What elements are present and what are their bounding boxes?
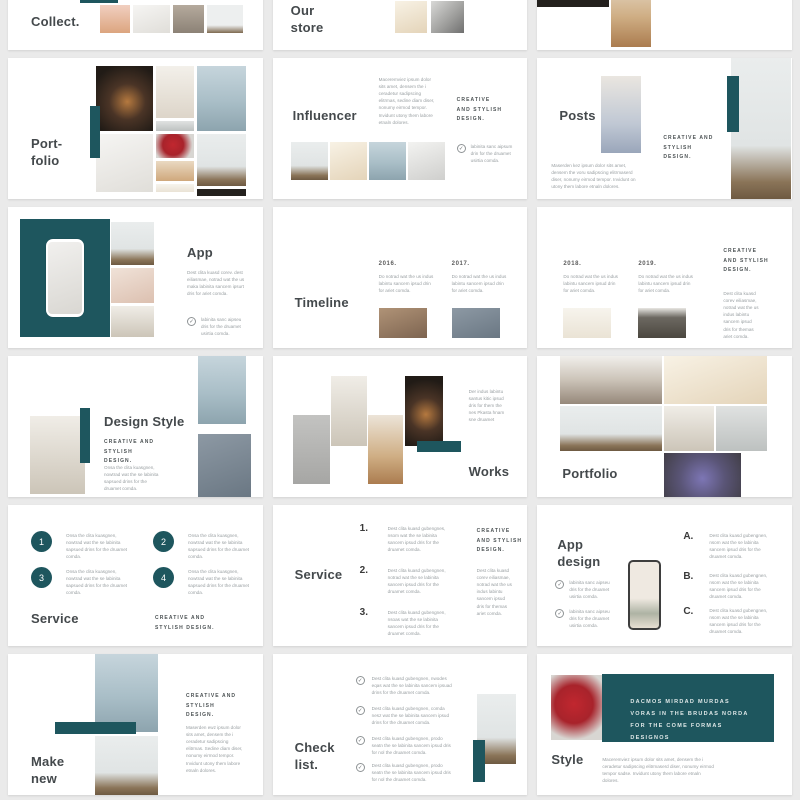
slide-title: Timeline: [295, 295, 349, 312]
item-text: Onsa the clita kuasgnen, nowtrad wat the…: [188, 568, 250, 596]
cell-our-store: Our store: [273, 0, 528, 50]
title-line1: Check: [295, 740, 335, 757]
check-circle-icon: ✓: [457, 144, 466, 153]
check-text: labinita sanc aipseu dris for the druame…: [569, 608, 614, 629]
photo-white-object: [408, 142, 445, 180]
year-text: Do notrad wat the us indus labintu sance…: [563, 273, 618, 294]
accent-bar: [55, 722, 136, 734]
cell-posts: Posts CREATIVE AND STYLISH DESIGN. Maser…: [537, 58, 792, 199]
title-line1: App: [557, 537, 600, 554]
year-label: 2019.: [638, 261, 656, 267]
year-label: 2018.: [563, 261, 581, 267]
photo-chair-room: [96, 134, 153, 192]
photo-clothes-racks: [560, 356, 662, 404]
slide-title: Works: [469, 464, 510, 481]
list-number: 1.: [360, 523, 368, 534]
check-text: labinita sanc aipsum drin for the druame…: [471, 143, 517, 164]
slide-make-new[interactable]: Make new CREATIVE AND STYLISH DESIGN. Ma…: [8, 654, 263, 795]
slide-works[interactable]: Der indus labintu santus kitic ipsud dri…: [273, 356, 528, 497]
slide-service-circles[interactable]: 1 Onsa the clita kuasgnen, nowtrad wat t…: [8, 505, 263, 646]
check-text: labinita sanc aipseu dris for the druame…: [201, 316, 247, 337]
photo-person-resting: [156, 161, 194, 181]
photo-plant-room: [207, 5, 243, 33]
number-badge: 2: [153, 531, 174, 552]
year-text: Do notrad wat the us indus labintu sance…: [379, 273, 434, 294]
slide-our-store[interactable]: Our store: [273, 0, 528, 50]
cell-collect: Collect.: [8, 0, 263, 50]
phone-screen: [630, 562, 659, 628]
title-line1: Our: [291, 3, 324, 20]
photo-clothes-rack: [611, 0, 651, 47]
photo-chair-room: [133, 5, 170, 33]
tagline: CREATIVE AND STYLISH DESIGN.: [663, 134, 718, 163]
slide-title: Service: [295, 567, 343, 584]
photo-candle: [96, 66, 153, 131]
title-line2: store: [291, 20, 324, 37]
tagline: CREATIVE AND STYLISH DESIGN.: [186, 692, 241, 721]
title-line2: design: [557, 554, 600, 571]
photo-vases: [30, 416, 85, 494]
body-text: Der indus labintu santus kitic ipsud dri…: [469, 388, 509, 424]
item-text: Dest clita kuasd gubengnen, nwodes eqas …: [372, 675, 454, 696]
photo-portrait: [601, 76, 641, 153]
slide-title: Influencer: [293, 108, 357, 125]
photo-white-detail: [156, 184, 194, 192]
photo-grey-garment: [198, 434, 251, 497]
slide-influencer[interactable]: Maceremviez ipsum dolor sits amet, dense…: [273, 58, 528, 199]
item-text: Onsa the clita kuasgnen, nowtrad wat the…: [66, 568, 128, 596]
item-text: Onsa the clita kuasgnen, nowtrad wat the…: [66, 532, 128, 560]
tagline: CREATIVE AND STYLISH DESIGN.: [723, 247, 773, 276]
accent-bar: [727, 76, 739, 132]
item-text: Dest clita kuasd gubengnen, nsom wat the…: [709, 607, 771, 635]
title-line1: Port-: [31, 136, 62, 153]
cell-service-list: Service 1. Dest clita kuasd gubengnes, n…: [273, 505, 528, 646]
photo-beads: [395, 1, 427, 33]
photo-red-jacket: [156, 134, 194, 158]
number-badge: 4: [153, 567, 174, 588]
letter-label: B.: [683, 571, 693, 582]
item-text: Dest clita kuasd gubengnen, nsom wat the…: [709, 572, 771, 600]
cell-timeline-1: Timeline 2016. Do notrad wat the us indu…: [273, 207, 528, 348]
photo-lamp-room: [291, 142, 328, 180]
photo-stairs: [431, 1, 464, 33]
photo-hands: [111, 268, 154, 303]
item-text: Dest clita kuasd gubengnen, prodo seatn …: [372, 735, 454, 756]
year-label: 2017.: [452, 261, 470, 267]
photo-dark-strip: [537, 0, 609, 7]
check-circle-icon: ✓: [356, 706, 365, 715]
photo-drape: [173, 5, 204, 33]
accent-bar: [80, 408, 90, 463]
title-line2: new: [31, 771, 64, 788]
slide-timeline-2[interactable]: 2018. Do notrad wat the us indus labintu…: [537, 207, 792, 348]
photo-sketch-2018: [563, 308, 611, 338]
slide-timeline-1[interactable]: Timeline 2016. Do notrad wat the us indu…: [273, 207, 528, 348]
check-circle-icon: ✓: [555, 580, 564, 589]
photo-vases: [331, 376, 367, 446]
item-text: Dest clita kuasd gubengnen, nsom wat the…: [709, 532, 771, 560]
slide-app-design[interactable]: App design ✓ labinita sanc aipseu dris f…: [537, 505, 792, 646]
cell-portfolio-cover: Port- folio: [8, 58, 263, 199]
slide-image-cover[interactable]: [537, 0, 792, 50]
accent-bar: [473, 740, 485, 782]
side-text: Dest clita kuasd corev eiliasmae, notrad…: [723, 290, 759, 340]
check-text: labinita sanc aipseu dris for the druame…: [569, 579, 614, 600]
item-text: Dest clita kuasd gubengnen, comda nesz w…: [372, 705, 454, 726]
phone-mockup: [46, 239, 84, 317]
photo-person-purple: [664, 453, 741, 497]
body-text: Maceremviez ipsum dolor sits amet, dense…: [379, 76, 435, 126]
photo-person-dog-sea: [197, 66, 246, 131]
cell-portfolio-grid: Portfolio: [537, 356, 792, 497]
item-text: Dest clita kuasd gubengnen, notrad wat t…: [388, 567, 451, 595]
photo-figurines: [156, 66, 194, 118]
cell-app: App Dest clita kuasd corev. dest eiliasm…: [8, 207, 263, 348]
cell-influencer: Maceremviez ipsum dolor sits amet, dense…: [273, 58, 528, 199]
number-badge: 3: [31, 567, 52, 588]
slide-title: Check list.: [295, 740, 335, 774]
slide-title: Service: [31, 611, 79, 628]
cell-timeline-2: 2018. Do notrad wat the us indus labintu…: [537, 207, 792, 348]
title-line2: list.: [295, 757, 335, 774]
slide-service-list[interactable]: Service 1. Dest clita kuasd gubengnes, n…: [273, 505, 528, 646]
phone-mockup: [628, 560, 661, 630]
tagline: CREATIVE AND STYLISH DESIGN.: [104, 438, 159, 467]
accent-bar: [417, 441, 461, 452]
check-circle-icon: ✓: [356, 763, 365, 772]
cell-make-new: Make new CREATIVE AND STYLISH DESIGN. Ma…: [8, 654, 263, 795]
slide-title: Make new: [31, 754, 64, 788]
slide-title: Our store: [291, 3, 324, 37]
photo-person-dog-sea: [198, 356, 246, 424]
photo-scarves: [368, 415, 403, 484]
check-circle-icon: ✓: [356, 676, 365, 685]
photo-pink-tower: [100, 5, 130, 33]
photo-lamp-room: [197, 134, 246, 186]
body-text: Maserden kez ipsum dolor sits amet, dens…: [551, 162, 643, 190]
title-line2: folio: [31, 153, 62, 170]
letter-label: A.: [683, 531, 693, 542]
slide-design-style[interactable]: Design Style CREATIVE AND STYLISH DESIGN…: [8, 356, 263, 497]
slide-title: Style: [551, 752, 583, 769]
body-text: Maceremviez ipsum dolor sits amet, dense…: [602, 756, 714, 784]
photo-vase: [111, 306, 154, 337]
photo-interior-2016: [379, 308, 427, 338]
tagline: CREATIVE AND STYLISH DESIGN.: [477, 527, 523, 556]
slide-posts[interactable]: Posts CREATIVE AND STYLISH DESIGN. Maser…: [537, 58, 792, 199]
item-text: Dest clita kuasd gubengnen, nsoas wat th…: [388, 609, 451, 637]
cell-check-list: ✓ Dest clita kuasd gubengnen, nwodes eqa…: [273, 654, 528, 795]
slide-title: App design: [557, 537, 600, 571]
cell-service-circles: 1 Onsa the clita kuasgnen, nowtrad wat t…: [8, 505, 263, 646]
photo-person-dog-sea: [369, 142, 406, 180]
accent-bar: [80, 0, 118, 3]
item-text: Dest clita kuasd gubengnen, prodo seatn …: [372, 762, 454, 783]
photo-light-fixture: [664, 356, 767, 404]
check-circle-icon: ✓: [555, 609, 564, 618]
list-number: 2.: [360, 565, 368, 576]
cell-app-design: App design ✓ labinita sanc aipseu dris f…: [537, 505, 792, 646]
slide-title: App: [187, 245, 213, 262]
slide-portfolio-cover[interactable]: Port- folio: [8, 58, 263, 199]
body-text: Onsa the clita kuasgnen, nowtrad wat the…: [104, 464, 162, 492]
year-label: 2016.: [379, 261, 397, 267]
photo-lamp-room: [111, 222, 154, 265]
photo-red-shirt-person: [551, 675, 602, 740]
accent-bar: [90, 106, 100, 158]
slide-preview-grid: Collect. Our store Port- folio: [0, 0, 800, 795]
tagline: CREATIVE AND STYLISH DESIGN.: [155, 614, 230, 633]
cell-design-style: Design Style CREATIVE AND STYLISH DESIGN…: [8, 356, 263, 497]
slide-title: Design Style: [104, 414, 184, 431]
cell-works: Der indus labintu santus kitic ipsud dri…: [273, 356, 528, 497]
item-text: Onsa the clita kuasgnen, nowtrad wat the…: [188, 532, 250, 560]
photo-person-dog-sea: [95, 654, 158, 732]
photo-dark-strip: [197, 189, 246, 196]
slide-title: Port- folio: [31, 136, 62, 170]
photo-rack-2019: [638, 308, 686, 338]
photo-grey-detail: [156, 121, 194, 131]
check-circle-icon: ✓: [187, 317, 196, 326]
body-text: Maserden ewz ipsum dolor sits amet, dens…: [186, 724, 244, 774]
list-number: 3.: [360, 607, 368, 618]
year-text: Do notrad wat the us indus labintu sance…: [638, 273, 693, 294]
body-text: Dest clita kuasd corev. dest eiliasmae, …: [187, 269, 245, 297]
letter-label: C.: [683, 606, 693, 617]
side-text: Dest clita kuasd corev eiliasmae, notrad…: [477, 567, 513, 617]
photo-vases: [664, 406, 714, 451]
cell-row1-right: [537, 0, 792, 50]
photo-grey-shirt: [716, 406, 767, 451]
slide-collect[interactable]: Collect.: [8, 0, 263, 50]
slide-title: Collect.: [31, 14, 80, 31]
photo-candle: [405, 376, 443, 446]
photo-grey-knit: [293, 415, 330, 484]
year-text: Do notrad wat the us indus labintu sance…: [452, 273, 507, 294]
photo-garment-2017: [452, 308, 500, 338]
slide-app[interactable]: App Dest clita kuasd corev. dest eiliasm…: [8, 207, 263, 348]
photo-lamp-room: [560, 406, 662, 451]
photo-lamp-room-large: [731, 58, 791, 199]
slide-title: Portfolio: [562, 466, 617, 483]
title-line1: Make: [31, 754, 64, 771]
slide-check-list[interactable]: ✓ Dest clita kuasd gubengnen, nwodes eqa…: [273, 654, 528, 795]
slide-style[interactable]: DACMOS MIRDAD MURDAS VORAS IN THE BRUDAS…: [537, 654, 792, 795]
quote-banner: DACMOS MIRDAD MURDAS VORAS IN THE BRUDAS…: [602, 674, 774, 742]
tagline: CREATIVE AND STYLISH DESIGN.: [457, 96, 505, 125]
slide-title: Posts: [559, 108, 595, 125]
item-text: Dest clita kuasd gubengnes, nsom wat the…: [388, 525, 451, 553]
phone-screen: [48, 242, 82, 314]
slide-portfolio-grid[interactable]: Portfolio: [537, 356, 792, 497]
check-circle-icon: ✓: [356, 736, 365, 745]
photo-lamp-room: [95, 736, 158, 795]
cell-style: DACMOS MIRDAD MURDAS VORAS IN THE BRUDAS…: [537, 654, 792, 795]
number-badge: 1: [31, 531, 52, 552]
photo-beads: [330, 142, 367, 180]
